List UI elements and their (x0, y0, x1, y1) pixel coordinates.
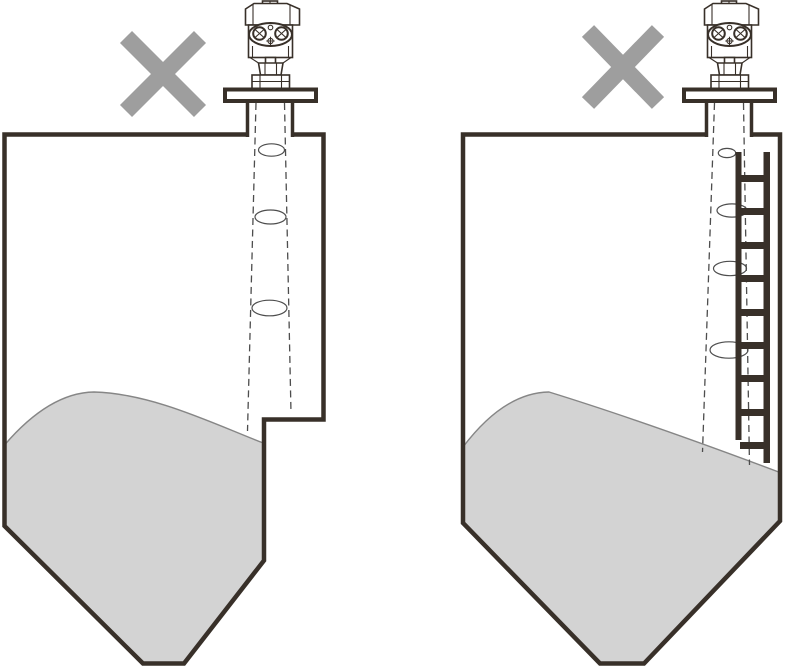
incorrect-cross-icon (126, 37, 200, 111)
beam-wavefront (714, 261, 747, 275)
ladder-rung (740, 208, 765, 215)
radar-beam (248, 103, 292, 431)
ladder-rung (740, 175, 765, 182)
stored-material (463, 392, 780, 662)
ladder-rung (740, 242, 765, 249)
right-panel (463, 1, 780, 664)
beam-edge (285, 103, 292, 413)
ladder-rung (740, 409, 765, 416)
beam-wavefront (718, 148, 735, 157)
ladder-rung (740, 309, 765, 316)
ladder-rung (740, 442, 765, 449)
incorrect-cross-icon (588, 31, 658, 103)
diagram-canvas (0, 0, 787, 668)
beam-edge (703, 103, 715, 452)
stored-material (5, 392, 263, 662)
ladder-rung (740, 375, 765, 382)
radar-sensor-right (684, 1, 775, 137)
ladder-rung (740, 342, 765, 349)
ladder (736, 152, 771, 463)
beam-wavefront (255, 210, 286, 224)
beam-wavefront (252, 300, 287, 316)
left-panel (5, 1, 324, 664)
ladder-rail (764, 152, 771, 463)
beam-edge (248, 103, 257, 431)
installation-diagram (0, 0, 787, 668)
ladder-rung (740, 275, 765, 282)
radar-sensor-left (225, 1, 316, 137)
beam-wavefront (259, 144, 285, 156)
ladder-rail (736, 152, 742, 440)
